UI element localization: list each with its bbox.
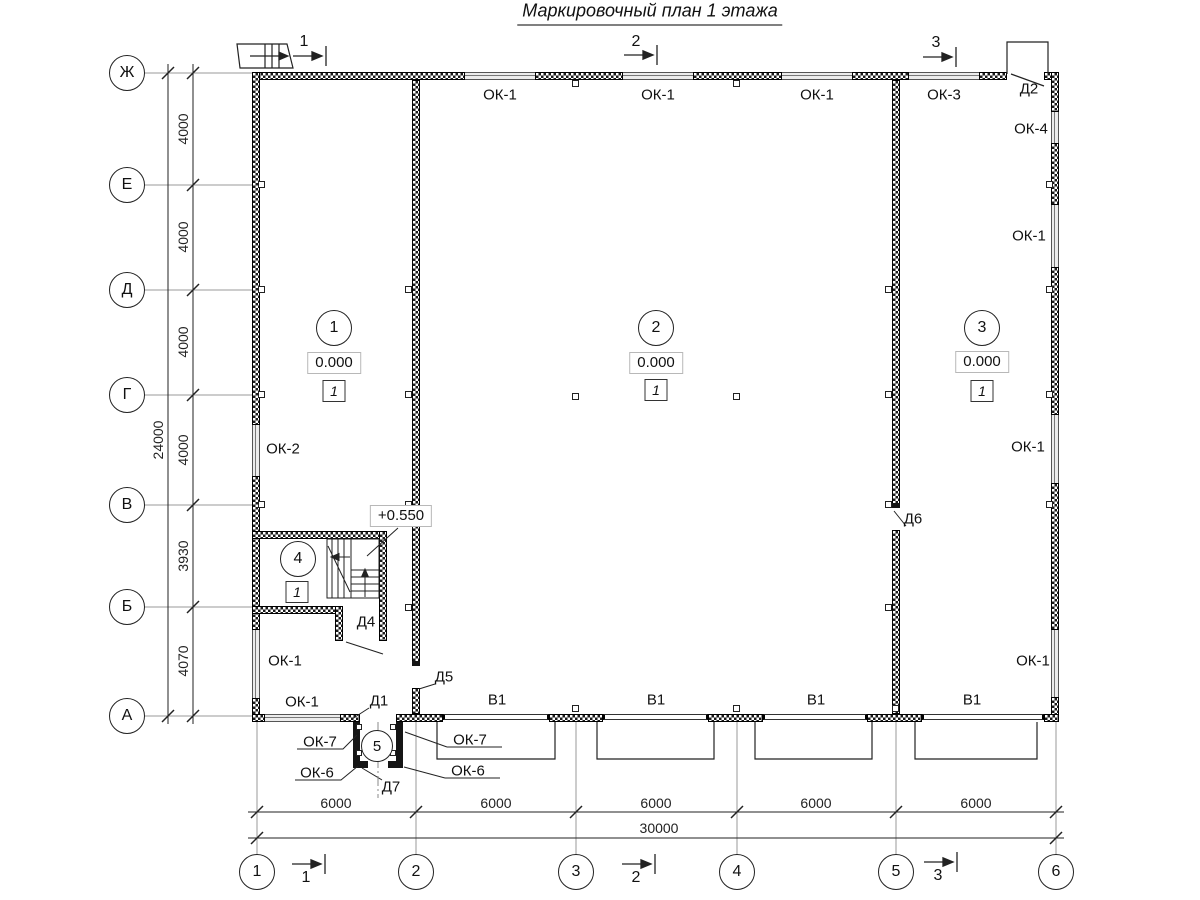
axis-row-label: Ж [120,64,135,82]
stair-landing-elevation: +0.550 [370,505,432,527]
dim-bottom-total: 30000 [640,820,679,836]
section-mark-2-bottom: 2 [632,869,641,887]
label-door-d2: Д2 [1020,81,1039,98]
axis-col-label: 5 [892,863,901,881]
dim-left: 4000 [175,434,191,465]
axis-row-a: А [109,698,145,734]
label-door-d4: Д4 [357,614,376,631]
dim-bottom: 6000 [640,795,671,811]
dimension-lines [168,64,1064,838]
axis-row-label: Г [123,386,132,404]
axis-row-label: Б [122,598,133,616]
room-1-elevation: 0.000 [307,352,361,374]
room-number-label: 5 [373,738,381,755]
axis-col-1: 1 [239,854,275,890]
axis-row-label: А [122,707,133,725]
axis-row-d: Д [109,272,145,308]
label-window-ok7: ОК-7 [453,732,487,749]
dim-left: 4000 [175,113,191,144]
room-4-finish-mark: 1 [286,581,309,603]
room-2-elevation: 0.000 [629,352,683,374]
room-number-label: 4 [294,550,303,568]
section-mark-2-top: 2 [632,33,641,51]
exterior-stair-icon [237,44,293,68]
room-1-finish-mark: 1 [323,380,346,402]
label-window-ok1: ОК-1 [641,87,675,104]
label-window-ok1: ОК-1 [1012,228,1046,245]
room-number-label: 3 [978,319,987,337]
axis-row-v: В [109,487,145,523]
room-3-number: 3 [964,310,1000,346]
axis-col-label: 3 [572,863,581,881]
section-mark-3-top: 3 [932,34,941,52]
axis-col-label: 6 [1052,863,1061,881]
section-mark-1-bottom: 1 [302,869,311,887]
label-gate-v1: В1 [963,692,981,709]
axis-col-label: 1 [253,863,262,881]
axis-col-6: 6 [1038,854,1074,890]
label-door-d5: Д5 [435,669,454,686]
dim-bottom: 6000 [960,795,991,811]
dim-left: 4070 [175,645,191,676]
label-gate-v1: В1 [488,692,506,709]
room-2-finish-mark: 1 [645,379,668,401]
grid-lines [144,73,1056,855]
label-window-ok1: ОК-1 [268,653,302,670]
label-gate-v1: В1 [807,692,825,709]
dim-bottom: 6000 [480,795,511,811]
room-number-label: 2 [652,319,661,337]
axis-row-label: Е [122,176,133,194]
drawing-title: Маркировочный план 1 этажа [517,1,782,26]
room-4-number: 4 [280,541,316,577]
dim-bottom: 6000 [320,795,351,811]
label-window-ok1: ОК-1 [483,87,517,104]
floor-plan-drawing: Маркировочный план 1 этажа Ж Е Д Г В Б А… [0,0,1200,900]
label-window-ok7: ОК-7 [303,734,337,751]
label-door-d1: Д1 [370,693,389,710]
axis-col-5: 5 [878,854,914,890]
axis-col-2: 2 [398,854,434,890]
label-window-ok6: ОК-6 [300,765,334,782]
label-window-ok1: ОК-1 [285,694,319,711]
axis-row-label: Д [122,281,133,299]
label-window-ok3: ОК-3 [927,87,961,104]
label-window-ok1: ОК-1 [800,87,834,104]
dim-left: 4000 [175,326,191,357]
room-1-number: 1 [316,310,352,346]
stair-room4 [327,539,379,598]
section-mark-1-top: 1 [300,33,309,51]
label-door-d7: Д7 [382,779,401,796]
axis-row-g: Г [109,377,145,413]
room-2-number: 2 [638,310,674,346]
axis-col-label: 4 [733,863,742,881]
porch-d2 [1007,42,1048,86]
axis-row-label: В [122,496,133,514]
axis-row-zh: Ж [109,55,145,91]
label-window-ok1: ОК-1 [1016,653,1050,670]
label-window-ok1: ОК-1 [1011,439,1045,456]
dim-left: 3930 [175,540,191,571]
axis-col-label: 2 [412,863,421,881]
label-gate-v1: В1 [647,692,665,709]
axis-row-b: Б [109,589,145,625]
room-number-label: 1 [330,319,339,337]
dim-bottom: 6000 [800,795,831,811]
label-window-ok6: ОК-6 [451,763,485,780]
room-3-elevation: 0.000 [955,351,1009,373]
axis-row-e: Е [109,167,145,203]
label-window-ok2: ОК-2 [266,441,300,458]
label-door-d6: Д6 [904,511,923,528]
section-mark-3-bottom: 3 [934,867,943,885]
room-3-finish-mark: 1 [971,380,994,402]
room-5-number: 5 [361,730,393,762]
axis-col-3: 3 [558,854,594,890]
label-window-ok4: ОК-4 [1014,121,1048,138]
dim-left: 4000 [175,221,191,252]
axis-col-4: 4 [719,854,755,890]
dim-left-total: 24000 [150,421,166,460]
